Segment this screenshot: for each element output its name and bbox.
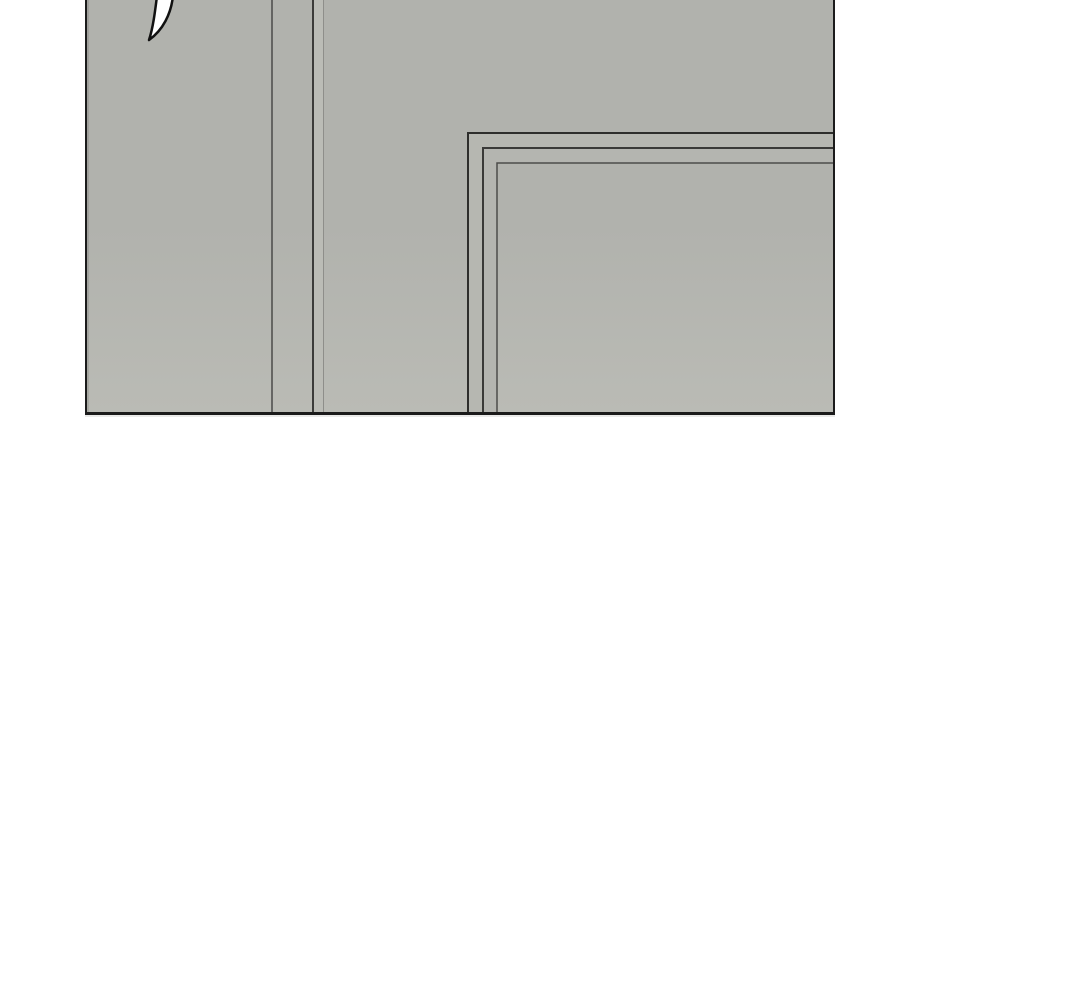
wall-edge-highlight (314, 0, 323, 412)
door-frame-band-inner (483, 148, 833, 412)
panel-drop-shadow (85, 415, 835, 417)
door-frame-middle-line (483, 148, 833, 412)
page-background (0, 0, 1080, 992)
door-frame-outer-line (468, 133, 833, 412)
door-frame-inner-line (497, 163, 833, 412)
door-frame-band-outer (468, 133, 833, 412)
comic-panel (85, 0, 835, 415)
brush-stroke (149, 0, 173, 40)
panel-artwork (87, 0, 833, 412)
